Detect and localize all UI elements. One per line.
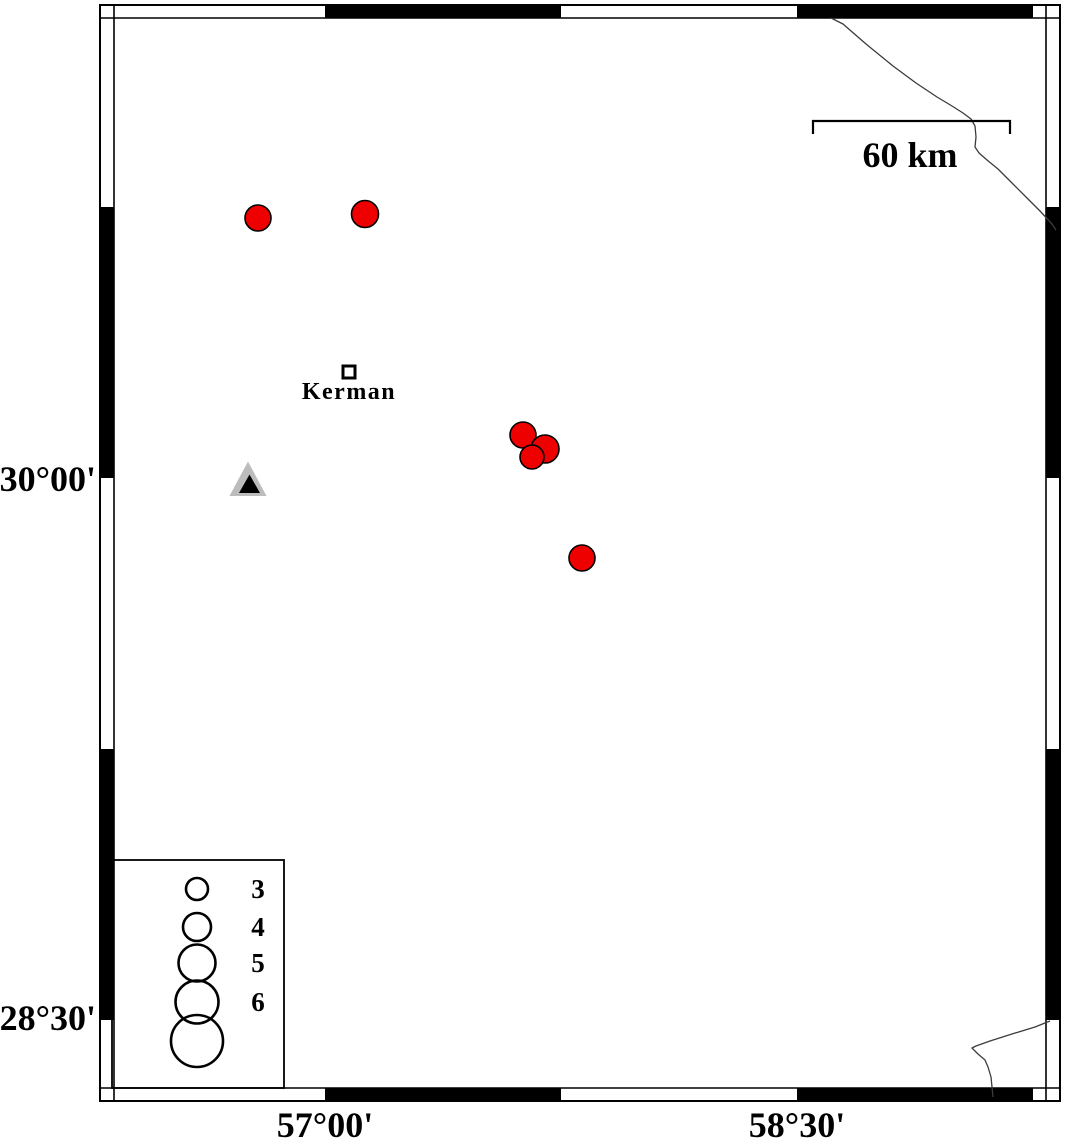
frame-band-bottom <box>797 1088 1033 1101</box>
latitude-label: 28°30' <box>0 998 96 1038</box>
scale-bar-label: 60 km <box>862 135 957 175</box>
longitude-label: 57°00' <box>277 1105 373 1143</box>
seismicity-map: 60 km Kerman 3456 30°00'28°30'57°00'58°3… <box>0 0 1066 1143</box>
longitude-label: 58°30' <box>749 1105 845 1143</box>
epicenter-circle <box>245 205 271 231</box>
frame-band-top <box>325 5 561 18</box>
frame-band-bottom <box>325 1088 561 1101</box>
frame-band-top <box>797 5 1033 18</box>
epicenter-circle <box>569 545 595 571</box>
latitude-label: 30°00' <box>0 459 96 499</box>
legend-magnitude-label: 3 <box>251 874 265 904</box>
frame-band-left <box>100 207 114 478</box>
city-marker-square <box>343 366 355 378</box>
city-label: Kerman <box>302 379 396 405</box>
epicenter-circle <box>352 201 379 228</box>
frame-band-right <box>1046 749 1060 1020</box>
legend-magnitude-label: 6 <box>251 987 265 1017</box>
frame-band-right <box>1046 207 1060 478</box>
seismicity-map-page: 60 km Kerman 3456 30°00'28°30'57°00'58°3… <box>0 0 1066 1143</box>
legend-magnitude-label: 4 <box>251 912 265 942</box>
legend-magnitude-label: 5 <box>251 948 265 978</box>
epicenter-circle <box>520 445 544 469</box>
